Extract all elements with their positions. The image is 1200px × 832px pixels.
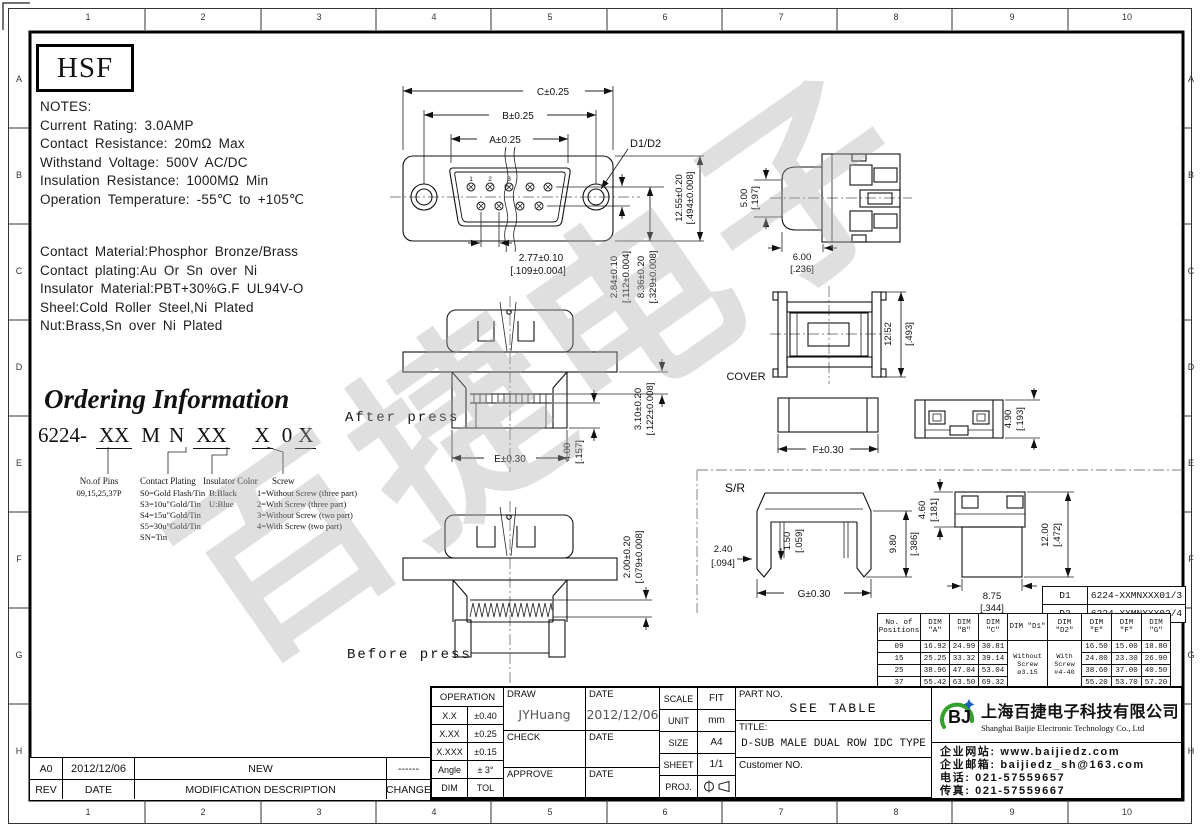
group-line: B:Black (203, 488, 258, 499)
ruler-label: 7 (771, 12, 791, 22)
dim-pitch-in: [.109±0.004] (510, 266, 566, 277)
ruler-label: 4 (424, 12, 444, 22)
group-title: Contact Plating (140, 476, 205, 487)
part-number-segment: 0 (282, 423, 293, 448)
pin-number: 2 (488, 176, 492, 183)
dim-g: G±0.30 (798, 589, 831, 600)
dim-before-in: [.079±0.008] (634, 531, 645, 584)
part-number-segment: M (141, 423, 160, 448)
table-header-row: No. ofPositions DIM "A" DIM "B" DIM "C" … (878, 614, 1171, 641)
part-number-prefix: 6224- (38, 423, 87, 447)
tol-label: X.XXX (432, 743, 468, 761)
ruler-label: D (11, 362, 27, 372)
rev-value: A0 (30, 758, 63, 779)
group-line: U:Blue (203, 499, 258, 510)
front-view: 1 2 3 C±0.25 B±0.25 A±0.25 D1/D2 12.55±0… (390, 84, 704, 303)
dim-press-height-in: [.157] (574, 440, 585, 464)
table-row: D1 6224-XXMNXXX01/3 (1043, 587, 1186, 605)
company-fax: 传真: 021-57559667 (940, 785, 1181, 798)
tol-label: DIM (432, 779, 468, 798)
dim-row-in: [.112±0.004] (621, 251, 632, 303)
dim-sr2-width-mm: 8.75 (983, 591, 1002, 602)
group-line: S4=15u"Gold/Tin (140, 510, 205, 521)
ordering-group-plating: Contact Plating S0=Gold Flash/Tin S3=10u… (140, 476, 205, 543)
company-header: BJ 上海百捷电子科技有限公司 Shanghai Baijie Electron… (932, 688, 1181, 743)
dim-side-height-in: [.197] (750, 186, 761, 210)
dim-front-height-mm: 12.55±0.20 (674, 174, 685, 221)
rev-change-value: ------ (387, 758, 430, 779)
group-line: 09,15,25,37P (64, 488, 134, 499)
ruler-label: 5 (540, 12, 560, 22)
dimension-table: No. ofPositions DIM "A" DIM "B" DIM "C" … (877, 613, 1171, 689)
tol-label: X.X (432, 707, 468, 725)
strain-relief-front-view: S/R 2.40 [.094] 1.50 [.059] 9.80 [.386] … (711, 481, 920, 600)
ruler-label: 2 (193, 12, 213, 22)
approve-label: APPROVE (507, 769, 553, 780)
ordering-group-color: Insulator Color B:Black U:Blue (203, 476, 258, 510)
company-website: 企业网站: www.baijiedz.com (940, 746, 1181, 759)
col-dim-e: DIM "E" (1082, 614, 1112, 641)
scale-value: FIT (698, 688, 736, 710)
ruler-label: 8 (886, 12, 906, 22)
title-label: TITLE: (739, 722, 768, 733)
ruler-label: 1 (78, 807, 98, 817)
dim-latch-mm: 4.90 (1003, 410, 1014, 429)
company-email: 企业邮箱: baijiedz_sh@163.com (940, 759, 1181, 772)
cell: 18.80 (1142, 641, 1171, 653)
dim-cover-height-in: [.493] (904, 322, 915, 346)
cover-side-view: F±0.30 (778, 398, 878, 456)
cell: 26.90 (1142, 653, 1171, 665)
cell: 09 (878, 641, 921, 653)
ruler-label: G (11, 650, 27, 660)
note-line: Contact Resistance: 20mΩ Max (40, 135, 304, 154)
ruler-label: D (1183, 362, 1199, 372)
proj-label: PROJ. (660, 776, 698, 798)
cell: 24.99 (950, 641, 979, 653)
col-dim-c: DIM "C" (979, 614, 1008, 641)
ruler-label: 6 (655, 807, 675, 817)
draw-date-cell: DATE 2012/12/06 (586, 688, 660, 731)
col-dim-d1: DIM "D1" (1008, 614, 1048, 641)
pins (467, 183, 552, 210)
cell: 53.04 (979, 665, 1008, 677)
date-header: DATE (63, 779, 135, 799)
cell: 16.92 (921, 641, 950, 653)
note-line: Current Rating: 3.0AMP (40, 117, 304, 136)
part-no-cell: PART NO. SEE TABLE (736, 688, 932, 721)
cover-view: 12.52 [.493] COVER (726, 286, 915, 384)
dim-sr-slot-mm: 1.50 (782, 532, 793, 551)
dim-sr-width-mm: 2.40 (714, 544, 733, 555)
material-line: Contact Material:Phosphor Bronze/Brass (40, 243, 304, 262)
cell: 25 (878, 665, 921, 677)
ruler-label: 3 (309, 12, 329, 22)
part-number-segment: XX (96, 423, 132, 449)
tol-value: ± 3° (468, 761, 504, 779)
dim-sr-slot-in: [.059] (794, 529, 805, 553)
dim-sr-height-in: [.386] (909, 532, 920, 556)
ruler-label: 2 (193, 807, 213, 817)
title-block: OPERATION X.X ±0.40 X.XX ±0.25 X.XXX ±0.… (430, 686, 1183, 800)
company-name-en: Shanghai Baijie Electronic Technology Co… (981, 723, 1179, 733)
ordering-group-screw: Screw 1=Without Screw (three part) 2=Wit… (257, 476, 357, 532)
materials-block: Contact Material:Phosphor Bronze/Brass C… (40, 243, 304, 336)
cell: 25.25 (921, 653, 950, 665)
dim-press-depth-in: [.122±0.008] (645, 383, 656, 436)
size-value: A4 (698, 732, 736, 754)
col-dim-d2: DIM "D2" (1048, 614, 1082, 641)
dim-tail-in: [.329±0.008] (648, 251, 659, 304)
dim-side-width-mm: 6.00 (793, 252, 812, 263)
group-title: No.of Pins (64, 476, 134, 487)
ruler-label: E (1183, 458, 1199, 468)
dim-row-mm: 2.84±0.10 (609, 256, 620, 298)
after-press-view: E±0.30 4.00 [.157] 3.10±0.20 [.122±0.008… (345, 296, 668, 472)
tol-label: Angle (432, 761, 468, 779)
size-label: SIZE (660, 732, 698, 754)
dim-tail-mm: 8.36±0.20 (636, 256, 647, 298)
cell: 39.14 (979, 653, 1008, 665)
group-title: Insulator Color (203, 476, 258, 487)
svg-text:BJ: BJ (948, 707, 971, 727)
group-line: S5=30u"Gold/Tin (140, 521, 205, 532)
col-dim-f: DIM "F" (1112, 614, 1142, 641)
cell: 38.96 (921, 665, 950, 677)
dim-e: E±0.30 (494, 454, 526, 465)
part-number-segment: X (252, 423, 273, 449)
scale-label: SCALE (660, 688, 698, 710)
dim-sr2-height-mm: 12.00 (1040, 523, 1051, 547)
ruler-label: C (11, 266, 27, 276)
cell-d1: Without Screwø3.15 (1008, 641, 1048, 689)
ruler-label: 9 (1002, 807, 1022, 817)
approve-cell: APPROVE (504, 768, 586, 798)
date-label: DATE (589, 689, 614, 700)
tol-value: ±0.40 (468, 707, 504, 725)
desc-header: MODIFICATION DESCRIPTION (135, 779, 387, 799)
customer-cell: Customer NO. (736, 758, 932, 798)
ruler-label: 9 (1002, 12, 1022, 22)
dim-c: C±0.25 (537, 87, 570, 98)
material-line: Contact plating:Au Or Sn over Ni (40, 262, 304, 281)
third-angle-projection-icon (702, 780, 732, 793)
tol-value: TOL (468, 779, 504, 798)
check-label: CHECK (507, 732, 540, 743)
group-line: SN=Tin (140, 532, 205, 543)
ruler-label: 10 (1117, 807, 1137, 817)
latch-view: 4.90 [.193] (915, 388, 1040, 450)
ruler-label: A (1183, 74, 1199, 84)
ruler-label: B (11, 170, 27, 180)
material-line: Nut:Brass,Sn over Ni Plated (40, 317, 304, 336)
before-press-label: Before press (347, 647, 472, 663)
dim-side-height-mm: 5.00 (739, 189, 750, 208)
customer-label: Customer NO. (736, 758, 806, 773)
dim-sr-width-in: [.094] (711, 558, 735, 569)
tol-label: X.XX (432, 725, 468, 743)
unit-label: UNIT (660, 710, 698, 732)
material-line: Insulator Material:PBT+30%G.F UL94V-O (40, 280, 304, 299)
draw-label: DRAW (507, 689, 536, 700)
note-line: Withstand Voltage: 500V AC/DC (40, 154, 304, 173)
dim-side-width-in: [.236] (790, 264, 814, 275)
cell: 24.80 (1082, 653, 1112, 665)
part-number-segment: XX (193, 423, 229, 449)
dim-b: B±0.25 (502, 111, 534, 122)
cell: 33.32 (950, 653, 979, 665)
date-label: DATE (589, 732, 614, 743)
dim-front-height-in: [.494±0.008] (685, 172, 696, 225)
proj-symbol-cell (698, 776, 736, 798)
cell: 23.30 (1112, 653, 1142, 665)
ruler-label: 7 (771, 807, 791, 817)
draw-cell: DRAW JYHuang (504, 688, 586, 731)
rev-desc-value: NEW (135, 758, 387, 779)
ruler-label: F (1183, 554, 1199, 564)
check-date-cell: DATE (586, 731, 660, 768)
ruler-label: 5 (540, 807, 560, 817)
ruler-label: H (11, 746, 27, 756)
ruler-label: G (1183, 650, 1199, 660)
cover-label: COVER (726, 371, 765, 383)
note-line: Operation Temperature: -55℃ to +105℃ (40, 191, 304, 210)
rev-date-value: 2012/12/06 (63, 758, 135, 779)
cell: 15 (878, 653, 921, 665)
dim-press-depth-mm: 3.10±0.20 (633, 388, 644, 430)
sheet-value: 1/1 (698, 754, 736, 776)
before-press-view: 2.00±0.20 [.079±0.008] Before press (347, 501, 652, 685)
part-number-segment: N (169, 423, 184, 448)
unit-value: mm (698, 710, 736, 732)
ruler-label: 8 (886, 807, 906, 817)
group-line: S0=Gold Flash/Tin (140, 488, 205, 499)
group-line: 4=With Screw (two part) (257, 521, 357, 532)
dim-before-mm: 2.00±0.20 (622, 536, 633, 578)
corner-mark (3, 3, 30, 30)
ordering-heading: Ordering Information (44, 384, 289, 415)
cell-d2: With Screw#4-40 (1048, 641, 1082, 689)
ruler-label: 3 (309, 807, 329, 817)
title-value: D-SUB MALE DUAL ROW IDC TYPE (741, 738, 926, 750)
notes-title: NOTES: (40, 98, 304, 117)
tol-value: ±0.15 (468, 743, 504, 761)
dim-sr2-top-in: [.181] (929, 498, 940, 522)
material-line: Sheel:Cold Roller Steel,Ni Plated (40, 299, 304, 318)
side-view: 5.00 [.197] 6.00 [.236] (739, 154, 912, 275)
dim-sr2-height-in: [.472] (1052, 523, 1063, 547)
ruler-label: 10 (1117, 12, 1137, 22)
cell: 16.50 (1082, 641, 1112, 653)
dim-sr2-top-mm: 4.60 (917, 501, 928, 520)
cell: 47.04 (950, 665, 979, 677)
cell: 15.00 (1112, 641, 1142, 653)
change-header: CHANGE (387, 779, 430, 799)
hsf-logo: HSF (36, 44, 134, 92)
date-label: DATE (589, 769, 614, 780)
ruler-label: E (11, 458, 27, 468)
ruler-label: F (11, 554, 27, 564)
dim-a: A±0.25 (489, 135, 521, 146)
cell: 40.50 (1142, 665, 1171, 677)
col-positions: No. ofPositions (878, 614, 921, 641)
ordering-leader-lines (108, 447, 283, 474)
date-value: 2012/12/06 (586, 707, 658, 722)
note-line: Insulation Resistance: 1000MΩ Min (40, 172, 304, 191)
notes-block: NOTES: Current Rating: 3.0AMP Contact Re… (40, 98, 304, 210)
check-cell: CHECK (504, 731, 586, 768)
table-row: 09 16.92 24.99 30.81 Without Screwø3.15 … (878, 641, 1171, 653)
ruler-label: 6 (655, 12, 675, 22)
col-dim-a: DIM "A" (921, 614, 950, 641)
dim-f: F±0.30 (812, 445, 843, 456)
tol-value: ±0.25 (468, 725, 504, 743)
pin-number: 1 (469, 176, 473, 183)
part-no-value: SEE TABLE (789, 701, 877, 716)
ordering-part-number: 6224-XXMNXXX0X (38, 423, 316, 449)
ruler-label: H (1183, 746, 1199, 756)
company-phone: 电话: 021-57559657 (940, 772, 1181, 785)
col-dim-b: DIM "B" (950, 614, 979, 641)
part-key: D1 (1043, 587, 1088, 605)
revision-table: A0 2012/12/06 NEW ------ REV DATE MODIFI… (30, 757, 431, 800)
cell: 37.00 (1112, 665, 1142, 677)
group-line: S3=10u"Gold/Tin (140, 499, 205, 510)
ruler-label: 4 (424, 807, 444, 817)
dim-latch-in: [.193] (1015, 407, 1026, 431)
pin-number: 3 (507, 176, 511, 183)
part-no-label: PART NO. (739, 689, 783, 700)
ruler-label: B (1183, 170, 1199, 180)
part-number-segment: X (295, 423, 316, 449)
dim-press-height-mm: 4.00 (562, 443, 573, 462)
company-name-cn: 上海百捷电子科技有限公司 (981, 698, 1179, 722)
dim-d1d2-label: D1/D2 (630, 138, 661, 150)
approve-date-cell: DATE (586, 768, 660, 798)
col-dim-g: DIM "G" (1142, 614, 1171, 641)
ruler-label: A (11, 74, 27, 84)
rev-header: REV (30, 779, 63, 799)
ruler-label: C (1183, 266, 1199, 276)
group-line: 2=With Screw (three part) (257, 499, 357, 510)
ruler-label: 1 (78, 12, 98, 22)
dim-pitch-mm: 2.77±0.10 (519, 253, 564, 264)
operation-header: OPERATION (432, 688, 504, 707)
cell: 30.81 (979, 641, 1008, 653)
sr-label: S/R (725, 481, 745, 495)
group-title: Screw (257, 476, 357, 487)
cell: 38.60 (1082, 665, 1112, 677)
ordering-group-pins: No.of Pins 09,15,25,37P (64, 476, 134, 499)
title-cell: TITLE: D-SUB MALE DUAL ROW IDC TYPE (736, 721, 932, 758)
sheet-label: SHEET (660, 754, 698, 776)
dim-sr-height-mm: 9.80 (888, 535, 899, 554)
after-press-label: After press (345, 410, 459, 426)
group-line: 1=Without Screw (three part) (257, 488, 357, 499)
dim-cover-height-mm: 12.52 (883, 322, 894, 346)
company-logo-icon: BJ (936, 696, 978, 734)
company-contact: 企业网站: www.baijiedz.com 企业邮箱: baijiedz_sh… (932, 743, 1181, 798)
part-value: 6224-XXMNXXX01/3 (1088, 587, 1186, 605)
group-line: 3=Without Screw (two part) (257, 510, 357, 521)
draw-value: JYHuang (518, 707, 570, 722)
